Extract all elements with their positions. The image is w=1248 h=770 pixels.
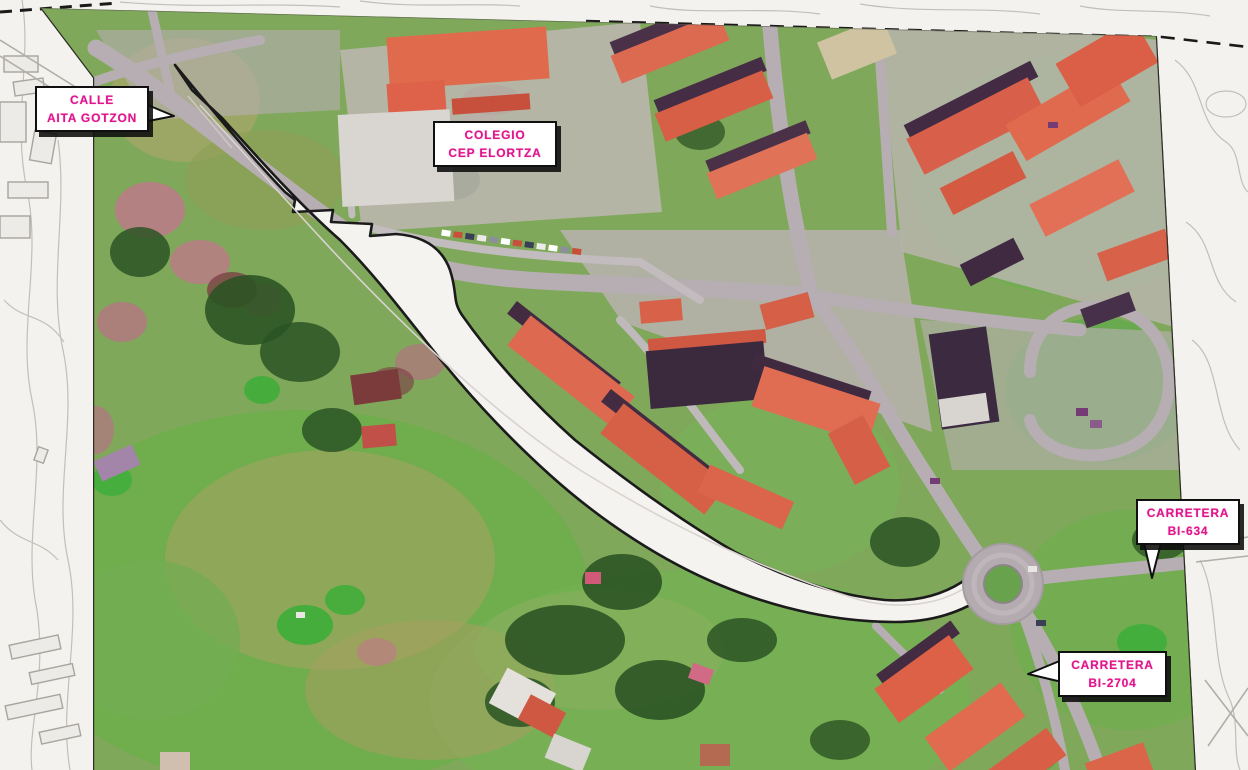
label-text-line2: BI-2704 (1064, 674, 1161, 692)
dark-roof-building (646, 341, 769, 409)
label-text-line2: CEP ELORTZA (439, 144, 551, 162)
label-text-line2: AITA GOTZON (41, 109, 143, 127)
map-label-colegio-cep-elortza: COLEGIO CEP ELORTZA (433, 121, 557, 167)
map-label-carretera-bi-2704: CARRETERA BI-2704 (1058, 651, 1167, 697)
label-text-line1: CARRETERA (1064, 656, 1161, 674)
label-text-line1: CALLE (41, 91, 143, 109)
map-label-calle-aita-gotzon: CALLE AITA GOTZON (35, 86, 149, 132)
label-text-line2: BI-634 (1142, 522, 1234, 540)
site-plan-page: CALLE AITA GOTZON COLEGIO CEP ELORTZA CA… (0, 0, 1248, 770)
school-building (386, 26, 549, 89)
map-label-carretera-bi-634: CARRETERA BI-634 (1136, 499, 1240, 545)
roundabout-island (984, 565, 1022, 603)
label-text-line1: CARRETERA (1142, 504, 1234, 522)
roundabout (963, 544, 1043, 624)
label-text-line1: COLEGIO (439, 126, 551, 144)
